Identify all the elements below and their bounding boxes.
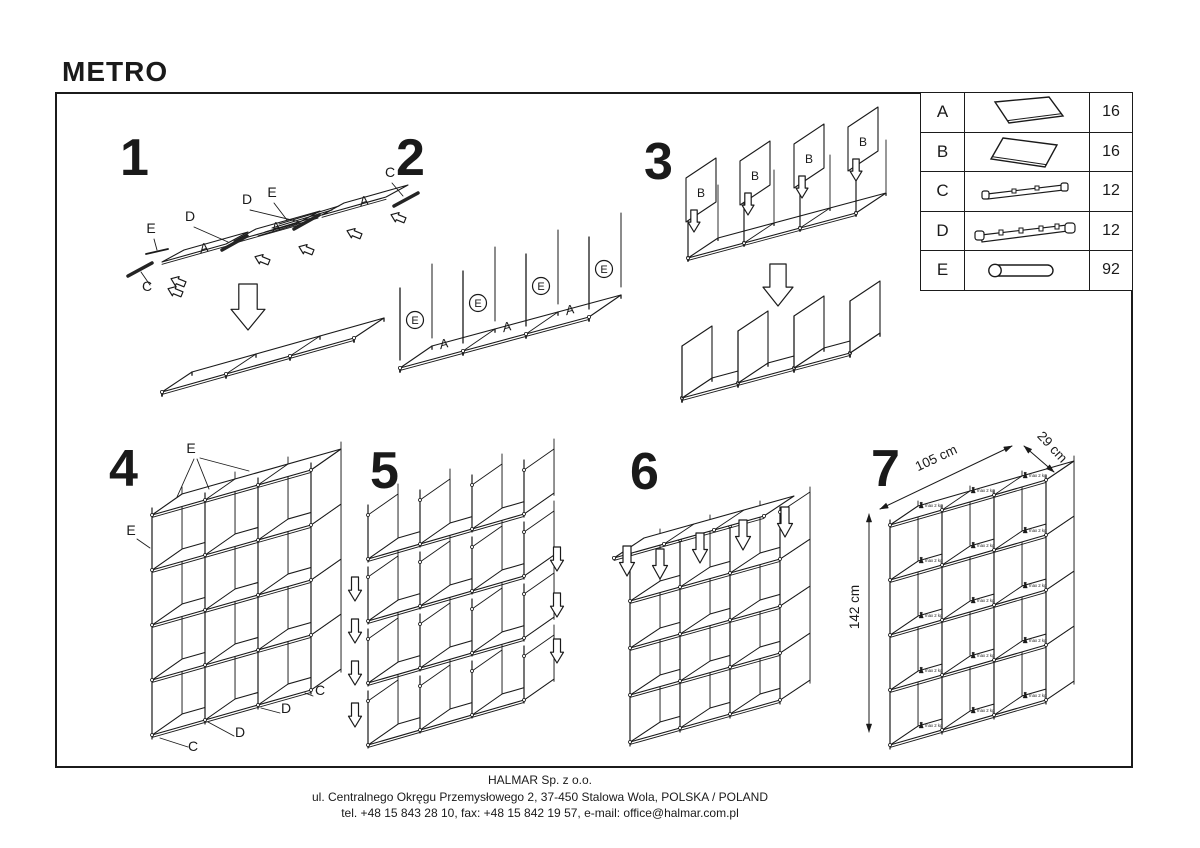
direction-arrow-icon [349, 619, 362, 643]
divider-panel-icon [965, 132, 1090, 172]
direction-arrow-icon [763, 264, 793, 306]
step-3-diagram: BBBB [680, 107, 886, 402]
direction-arrow-icon [345, 226, 363, 241]
part-d-label: D [242, 191, 252, 207]
part-quantity: 16 [1090, 93, 1133, 133]
part-letter: B [921, 132, 965, 172]
max-load-label: max 2 kg [977, 653, 995, 658]
part-e-label: E [186, 440, 195, 456]
panel-b-label: B [751, 169, 759, 183]
part-c-label: C [315, 682, 325, 698]
direction-arrow-icon [349, 577, 362, 601]
company-name: HALMAR Sp. z o.o. [0, 772, 1080, 789]
max-load-label: max 2 kg [977, 708, 995, 713]
connector-e-label: E [537, 281, 544, 293]
max-load-label: max 2 kg [925, 668, 943, 673]
step-4-diagram: EECDDC [126, 440, 341, 754]
parts-table-row: C 12 [921, 172, 1133, 212]
max-load-label: max 2 kg [977, 488, 995, 493]
connector-e-label: E [474, 298, 481, 310]
parts-table-row: E 92 [921, 251, 1133, 291]
parts-table-row: A 16 [921, 93, 1133, 133]
height-dimension-label: 142 cm [847, 585, 862, 629]
max-load-label: max 2 kg [1029, 583, 1047, 588]
width-dimension-label: 105 cm [913, 442, 959, 474]
part-quantity: 12 [1090, 172, 1133, 212]
panel-b-label: B [859, 135, 867, 149]
parts-table-row: B 16 [921, 132, 1133, 172]
tube-icon [965, 251, 1090, 291]
company-contact: tel. +48 15 843 28 10, fax: +48 15 842 1… [0, 805, 1080, 822]
direction-arrow-icon [389, 210, 407, 225]
part-d-label: D [281, 700, 291, 716]
connector-e-label: E [411, 315, 418, 327]
step-1-diagram: AAACEDDEC [128, 164, 418, 396]
max-load-label: max 2 kg [1029, 528, 1047, 533]
step-6-diagram [612, 487, 810, 746]
max-load-label: max 2 kg [1029, 473, 1047, 478]
max-load-label: max 2 kg [1029, 693, 1047, 698]
max-load-label: max 2 kg [977, 543, 995, 548]
part-d-label: D [185, 208, 195, 224]
panel-b-label: B [697, 186, 705, 200]
direction-arrow-icon [231, 284, 265, 330]
step-2-diagram: EEEEAAA [398, 213, 621, 372]
parts-list-table: A 16 B 16 C 12 D 12 [920, 92, 1133, 291]
direction-arrow-icon [349, 703, 362, 727]
part-c-label: C [385, 164, 395, 180]
end-rail-icon [965, 172, 1090, 212]
direction-arrow-icon [297, 242, 315, 257]
connector-rail-icon [965, 211, 1090, 251]
parts-table-row: D 12 [921, 211, 1133, 251]
part-letter: D [921, 211, 965, 251]
max-load-label: max 2 kg [925, 613, 943, 618]
step-7-diagram: max 2 kgmax 2 kgmax 2 kgmax 2 kgmax 2 kg… [847, 428, 1074, 749]
panel-b-label: B [805, 152, 813, 166]
part-quantity: 16 [1090, 132, 1133, 172]
direction-arrow-icon [253, 252, 271, 267]
connector-e-label: E [600, 264, 607, 276]
manufacturer-info: HALMAR Sp. z o.o. ul. Centralnego Okręgu… [0, 772, 1080, 822]
assembly-instructions-page: METRO 1 2 3 4 5 6 7 AAACEDDECEEEEAAABBBB… [0, 0, 1200, 848]
direction-arrow-icon [169, 274, 187, 289]
max-load-label: max 2 kg [925, 723, 943, 728]
max-load-label: max 2 kg [1029, 638, 1047, 643]
shelf-panel-icon [965, 93, 1090, 133]
company-address: ul. Centralnego Okręgu Przemysłowego 2, … [0, 789, 1080, 806]
part-e-label: E [126, 522, 135, 538]
part-quantity: 12 [1090, 211, 1133, 251]
part-d-label: D [235, 724, 245, 740]
max-load-label: max 2 kg [977, 598, 995, 603]
part-e-label: E [267, 184, 276, 200]
part-letter: C [921, 172, 965, 212]
part-quantity: 92 [1090, 251, 1133, 291]
max-load-label: max 2 kg [925, 558, 943, 563]
part-letter: E [921, 251, 965, 291]
step-5-diagram [349, 439, 564, 748]
part-e-label: E [146, 220, 155, 236]
direction-arrow-icon [349, 661, 362, 685]
max-load-label: max 2 kg [925, 503, 943, 508]
part-letter: A [921, 93, 965, 133]
part-c-label: C [188, 738, 198, 754]
